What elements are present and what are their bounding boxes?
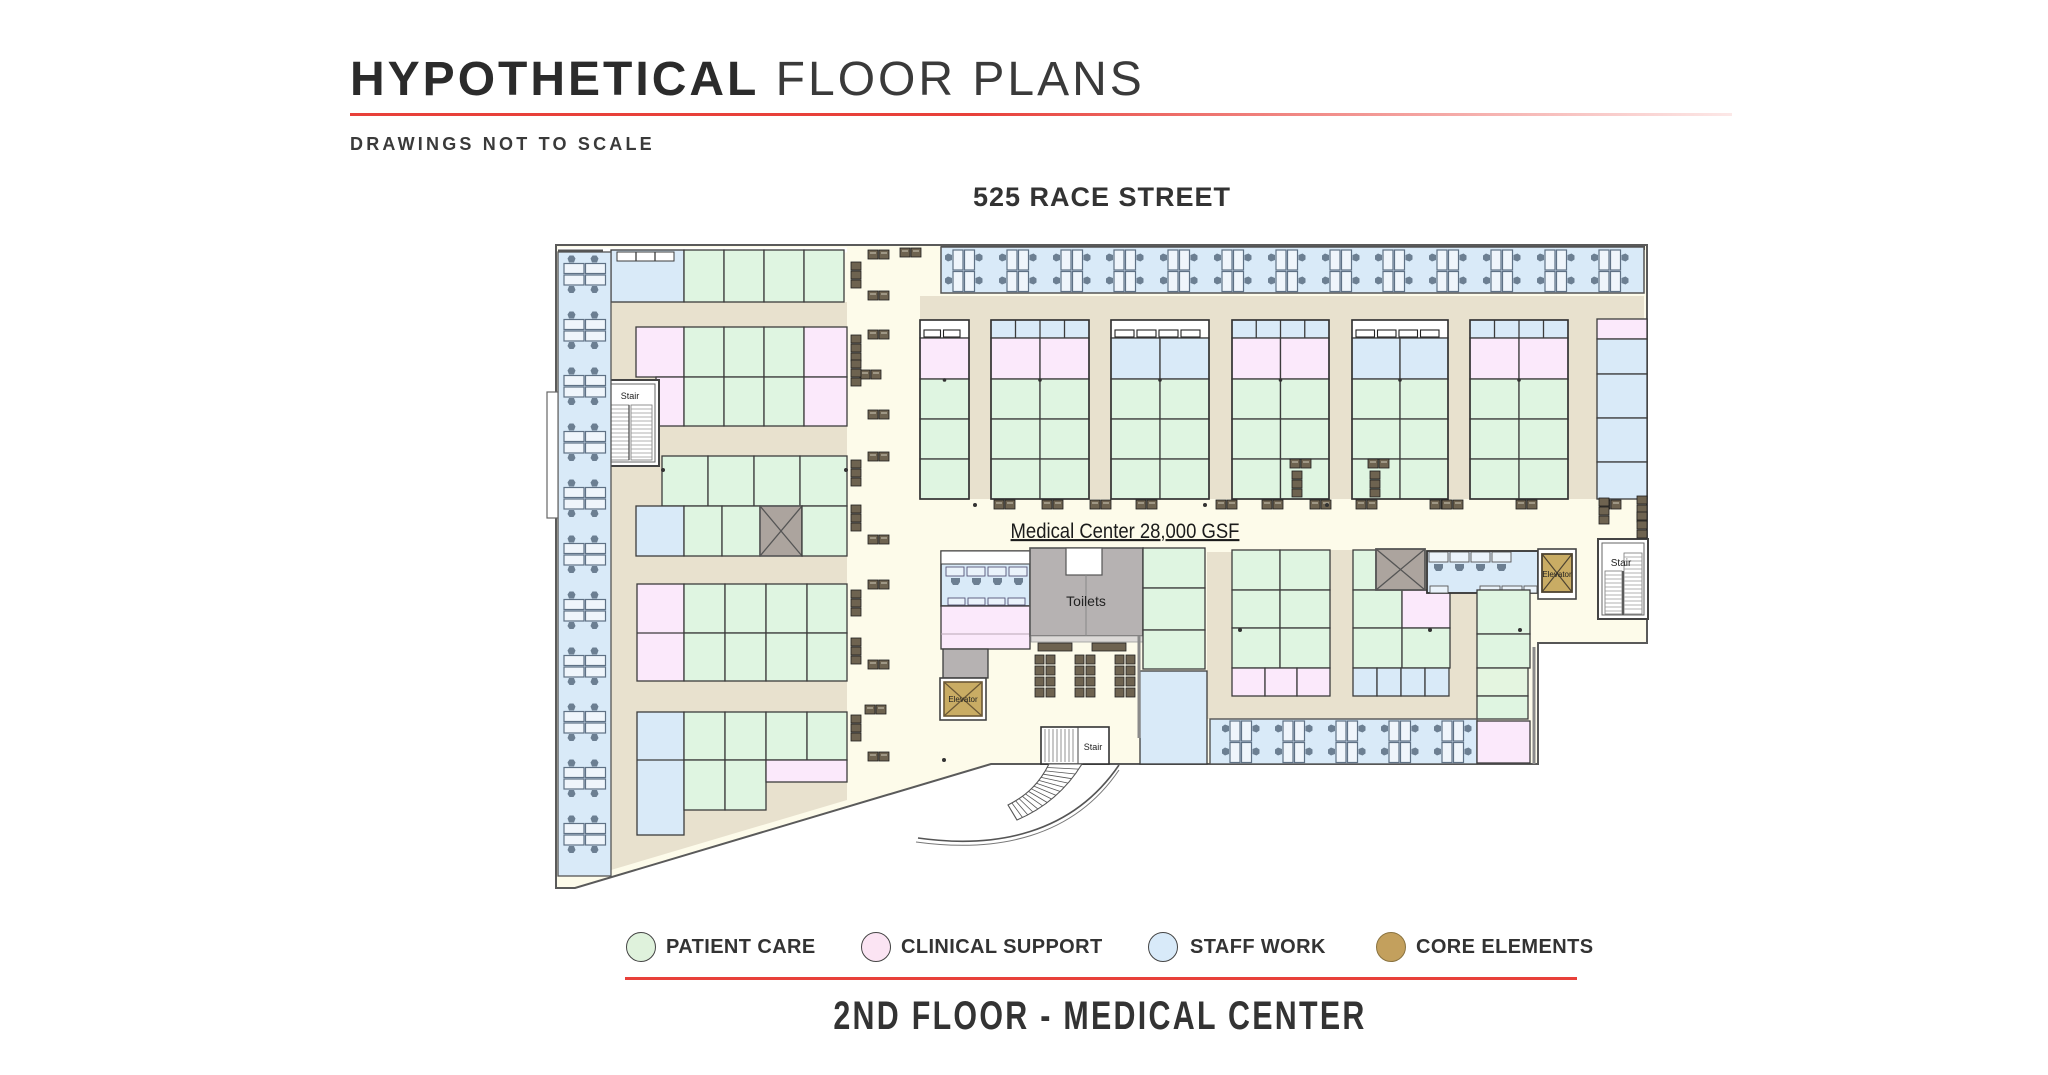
svg-text:Stair: Stair bbox=[1084, 742, 1103, 752]
svg-text:Elevator: Elevator bbox=[948, 695, 978, 704]
svg-text:Toilets: Toilets bbox=[1066, 593, 1106, 609]
svg-text:Medical Center 28,000 GSF: Medical Center 28,000 GSF bbox=[1011, 520, 1240, 543]
svg-text:Stair: Stair bbox=[621, 391, 640, 401]
svg-text:Elevator: Elevator bbox=[1542, 570, 1572, 579]
svg-text:Stair: Stair bbox=[1611, 558, 1632, 569]
